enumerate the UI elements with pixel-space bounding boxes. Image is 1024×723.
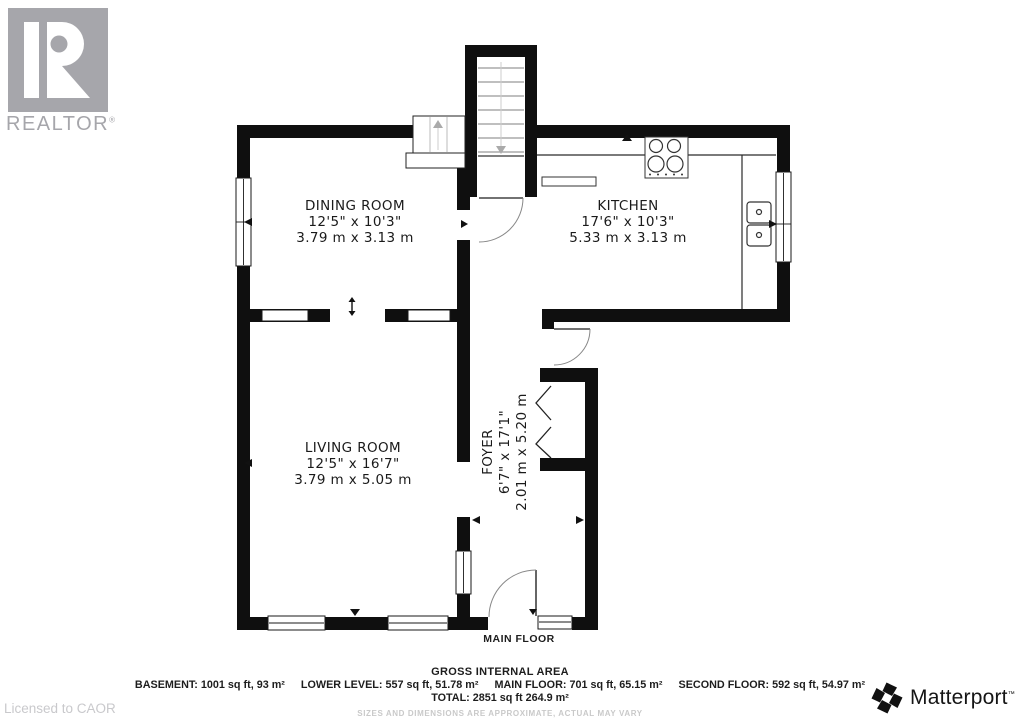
matterport-wordmark: Matterport™ bbox=[910, 686, 1015, 710]
room-label-kitchen: KITCHEN 17'6" x 10'3" 5.33 m x 3.13 m bbox=[528, 198, 728, 246]
registered-mark-icon: ® bbox=[109, 115, 115, 124]
room-dim-imperial: 12'5" x 16'7" bbox=[253, 456, 453, 472]
double-sink bbox=[747, 202, 771, 246]
matterport-logo: Matterport™ bbox=[870, 681, 1015, 715]
room-dim-metric: 2.01 m x 5.20 m bbox=[514, 377, 531, 527]
licensed-note: Licensed to CAOR bbox=[4, 701, 116, 716]
back-door bbox=[554, 329, 590, 365]
area-summary: GROSS INTERNAL AREA BASEMENT: 1001 sq ft… bbox=[10, 666, 990, 718]
room-dim-imperial: 6'7" x 17'1" bbox=[497, 377, 514, 527]
realtor-wordmark: REALTOR® bbox=[6, 113, 115, 136]
stair-run-left bbox=[406, 116, 465, 168]
floorplan-drawing bbox=[0, 0, 1024, 723]
room-name: FOYER bbox=[480, 377, 497, 527]
room-dim-metric: 5.33 m x 3.13 m bbox=[528, 230, 728, 246]
realtor-logo bbox=[8, 8, 108, 112]
room-name: KITCHEN bbox=[528, 198, 728, 214]
room-label-foyer: FOYER 6'7" x 17'1" 2.01 m x 5.20 m bbox=[480, 377, 532, 527]
floor-label: MAIN FLOOR bbox=[419, 633, 619, 645]
area-basement: BASEMENT: 1001 sq ft, 93 m² bbox=[135, 679, 285, 691]
room-label-dining: DINING ROOM 12'5" x 10'3" 3.79 m x 3.13 … bbox=[255, 198, 455, 246]
stair-door bbox=[479, 198, 523, 242]
room-label-living: LIVING ROOM 12'5" x 16'7" 3.79 m x 5.05 … bbox=[253, 440, 453, 488]
room-name: DINING ROOM bbox=[255, 198, 455, 214]
room-dim-imperial: 17'6" x 10'3" bbox=[528, 214, 728, 230]
closet-bifold-doors bbox=[536, 386, 551, 458]
gross-area-title: GROSS INTERNAL AREA bbox=[10, 666, 990, 678]
area-main-floor: MAIN FLOOR: 701 sq ft, 65.15 m² bbox=[495, 679, 663, 691]
stairs-down-arrow bbox=[496, 146, 506, 154]
room-dim-metric: 3.79 m x 3.13 m bbox=[255, 230, 455, 246]
stove bbox=[645, 137, 688, 178]
area-lower-level: LOWER LEVEL: 557 sq ft, 51.78 m² bbox=[301, 679, 479, 691]
floorplan-page: { "branding": { "realtor_wordmark": "REA… bbox=[0, 0, 1024, 723]
disclaimer-text: SIZES AND DIMENSIONS ARE APPROXIMATE, AC… bbox=[10, 709, 990, 718]
room-dim-imperial: 12'5" x 10'3" bbox=[255, 214, 455, 230]
counter-section bbox=[542, 177, 596, 186]
gross-area-breakdown: BASEMENT: 1001 sq ft, 93 m²LOWER LEVEL: … bbox=[10, 679, 990, 691]
area-second-floor: SECOND FLOOR: 592 sq ft, 54.97 m² bbox=[679, 679, 866, 691]
room-dim-metric: 3.79 m x 5.05 m bbox=[253, 472, 453, 488]
area-total: TOTAL: 2851 sq ft 264.9 m² bbox=[10, 692, 990, 704]
room-name: LIVING ROOM bbox=[253, 440, 453, 456]
matterport-pinwheel-icon bbox=[870, 681, 904, 715]
entry-door bbox=[489, 570, 536, 617]
trademark-mark-icon: ™ bbox=[1008, 691, 1015, 698]
